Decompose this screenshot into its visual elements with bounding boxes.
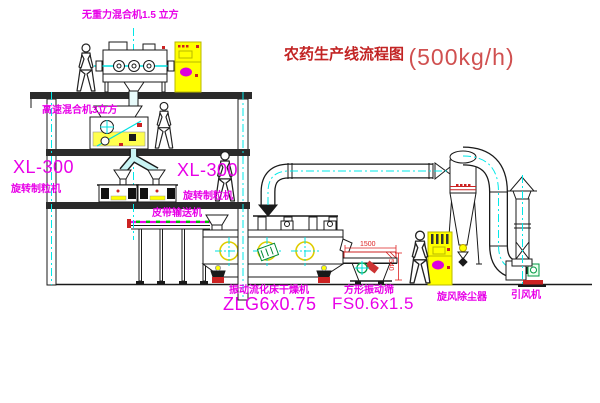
dimension-sieve-length: 1500 (360, 241, 376, 248)
label-mid-mixer: 高速混合机3立方 (42, 106, 118, 116)
label-granulator-left-name: 旋转制粒机 (11, 185, 61, 195)
fluid-bed-dryer (203, 216, 343, 283)
label-top-mixer: 无重力混合机1.5 立方 (82, 11, 179, 21)
title-text: 农药生产线流程图 (284, 46, 404, 63)
title-capacity: (500kg/h) (408, 44, 514, 70)
label-granulator-right-model: XL-300 (177, 161, 238, 179)
label-granulator-right-name: 旋转制粒机 (183, 192, 233, 202)
label-dryer-model: ZLG6x0.75 (223, 295, 317, 313)
granulator-left (97, 170, 139, 202)
person-icon (410, 231, 430, 283)
label-belt-conveyor: 皮带输送机 (152, 209, 202, 219)
granulator-right (136, 170, 178, 202)
control-cabinet-top (175, 42, 201, 92)
person-icon (77, 44, 95, 91)
label-sieve-model: FS0.6x1.5 (332, 295, 414, 312)
label-fan: 引风机 (511, 291, 541, 301)
control-cabinet-right (428, 232, 452, 285)
label-cyclone: 旋风除尘器 (437, 293, 487, 303)
dimension-sieve-height: 540 (387, 259, 394, 271)
belt-conveyor (127, 219, 212, 284)
flow-diagram-page: 农药生产线流程图 (500kg/h) 无重力混合机1.5 立方 高速混合机3立方… (0, 0, 600, 403)
person-icon (155, 102, 172, 148)
exhaust-duct (259, 163, 450, 216)
label-granulator-left-model: XL-300 (13, 158, 74, 176)
drawing-title: 农药生产线流程图 (500kg/h) (284, 46, 515, 69)
